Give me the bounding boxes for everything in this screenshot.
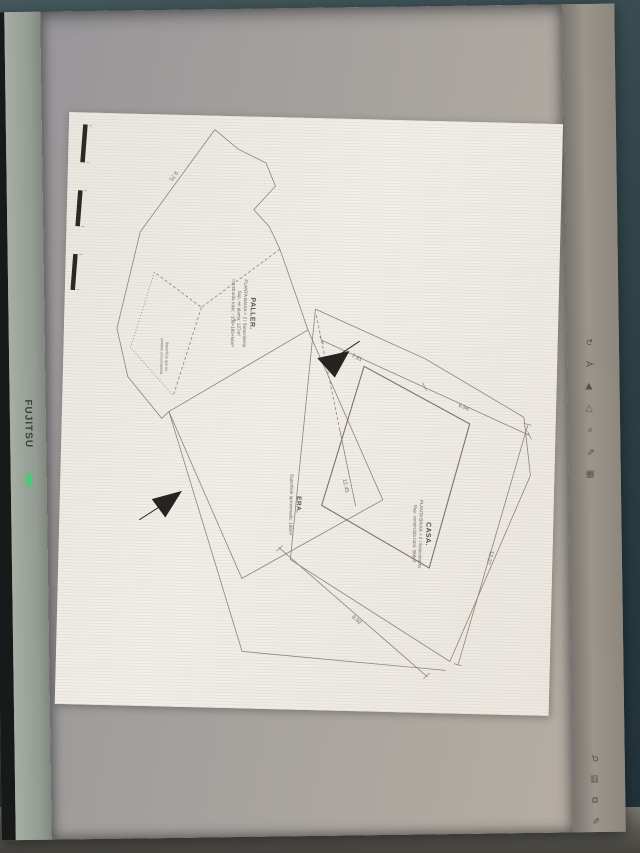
paller-label: PALLER. PLANTA BAIXA + 2 i Sotacoberta S…	[228, 279, 256, 348]
freehand-icon[interactable]: ≈	[584, 424, 596, 436]
photo-of-monitor: FUJITSU	[0, 0, 640, 853]
fujitsu-monitor: FUJITSU	[0, 4, 626, 841]
casa-label: CASA. PLANTA BAIXA + 2 i Sotacoberta Sup…	[410, 500, 432, 568]
fujitsu-logo: FUJITSU	[22, 399, 33, 431]
edit-icon[interactable]: ✎	[590, 815, 602, 827]
site-plan-drawing	[55, 112, 563, 716]
power-led	[27, 474, 31, 486]
north-arrow-icon	[139, 490, 182, 521]
property-note: Superfície que no pertany a la propietat	[158, 338, 169, 374]
bezel-toolbar-bottom: ⚲ ▤ ⧉ ✎	[589, 752, 602, 827]
era-label: ERA. Superficie aproximada: 166m²	[287, 474, 303, 536]
back-triangle-icon[interactable]: ◀	[583, 380, 595, 392]
screen: PALLER. PLANTA BAIXA + 2 i Sotacoberta S…	[40, 4, 574, 839]
text-tool-icon[interactable]: Ā	[583, 358, 595, 370]
era-title: ERA.	[294, 474, 302, 535]
forward-triangle-icon[interactable]: ◁	[584, 402, 596, 414]
zoom-icon[interactable]: ⚲	[586, 750, 603, 767]
grid-icon[interactable]: ▦	[585, 468, 597, 480]
bezel-toolbar-top: ↻ Ā ◀ ◁ ≈ ✎ ▦	[583, 336, 597, 480]
site-plan-document: PALLER. PLANTA BAIXA + 2 i Sotacoberta S…	[55, 112, 563, 716]
pencil-icon[interactable]: ✎	[584, 446, 596, 458]
scale-bar	[70, 124, 92, 290]
copy-icon[interactable]: ⧉	[589, 794, 601, 806]
rotate-icon[interactable]: ↻	[583, 336, 595, 348]
image-icon[interactable]: ▤	[589, 773, 601, 785]
monitor-top-bezel: ↻ Ā ◀ ◁ ≈ ✎ ▦ ⚲ ▤ ⧉ ✎	[562, 4, 626, 833]
